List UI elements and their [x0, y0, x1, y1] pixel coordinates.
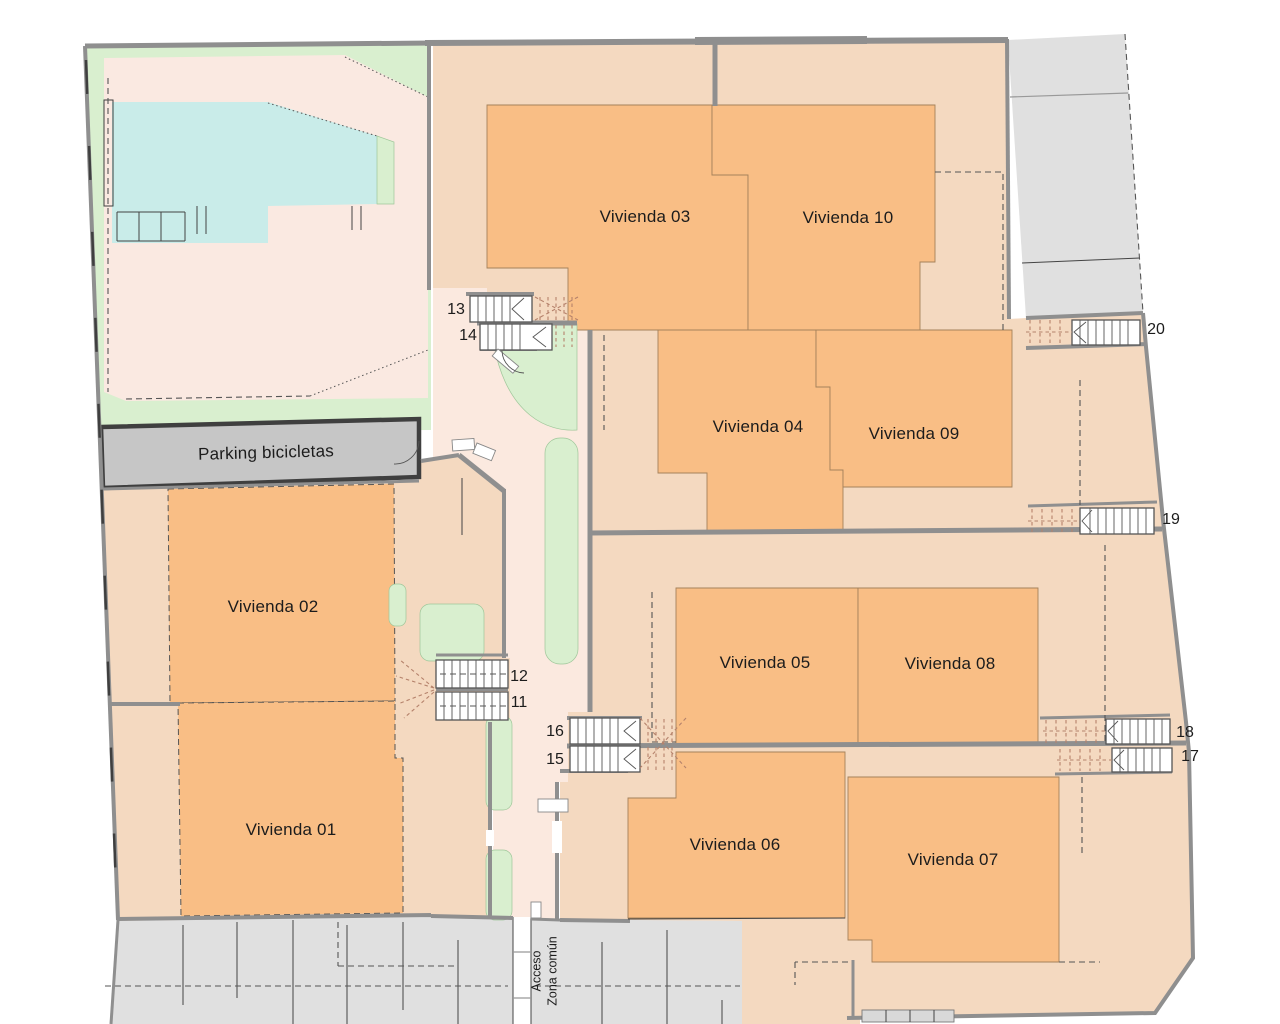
stair-number-11: 11 — [511, 694, 528, 712]
unit-label-vivienda-09: Vivienda 09 — [869, 424, 960, 444]
access-label-line1: Acceso — [529, 951, 543, 992]
unit-label-vivienda-03: Vivienda 03 — [600, 207, 691, 227]
floor-plan-canvas — [0, 0, 1280, 1024]
stair-number-18: 18 — [1176, 724, 1194, 742]
unit-label-vivienda-01: Vivienda 01 — [246, 820, 337, 840]
street-area — [105, 916, 742, 1024]
stair-number-19: 19 — [1162, 511, 1180, 529]
unit-vivienda-02-area — [168, 484, 395, 703]
parking-label: Parking bicicletas — [198, 441, 334, 465]
stair-number-14: 14 — [459, 327, 477, 345]
unit-label-vivienda-05: Vivienda 05 — [720, 653, 811, 673]
stair-number-20: 20 — [1147, 321, 1165, 339]
unit-label-vivienda-06: Vivienda 06 — [690, 835, 781, 855]
unit-label-vivienda-02: Vivienda 02 — [228, 597, 319, 617]
stair-number-12: 12 — [510, 668, 528, 686]
stair-number-13: 13 — [447, 301, 465, 319]
unit-vivienda-01-area — [178, 701, 403, 916]
garden-area — [85, 43, 431, 432]
stair-number-17: 17 — [1181, 748, 1199, 766]
unit-label-vivienda-07: Vivienda 07 — [908, 850, 999, 870]
bottom-edge-stair — [862, 1010, 954, 1022]
neighbor-building-area — [1008, 34, 1143, 318]
unit-vivienda-09-area — [816, 330, 1012, 487]
access-label-line2: Zona común — [545, 936, 559, 1005]
stair-number-15: 15 — [546, 751, 564, 769]
stairwell-16 — [570, 718, 640, 744]
stairwell-12 — [436, 660, 508, 688]
access-label: Acceso Zona común — [529, 936, 560, 1005]
unit-label-vivienda-10: Vivienda 10 — [803, 208, 894, 228]
stair-number-16: 16 — [546, 723, 564, 741]
unit-label-vivienda-08: Vivienda 08 — [905, 654, 996, 674]
floor-plan: Vivienda 01 Vivienda 02 Vivienda 03 Vivi… — [0, 0, 1280, 1024]
unit-label-vivienda-04: Vivienda 04 — [713, 417, 804, 437]
